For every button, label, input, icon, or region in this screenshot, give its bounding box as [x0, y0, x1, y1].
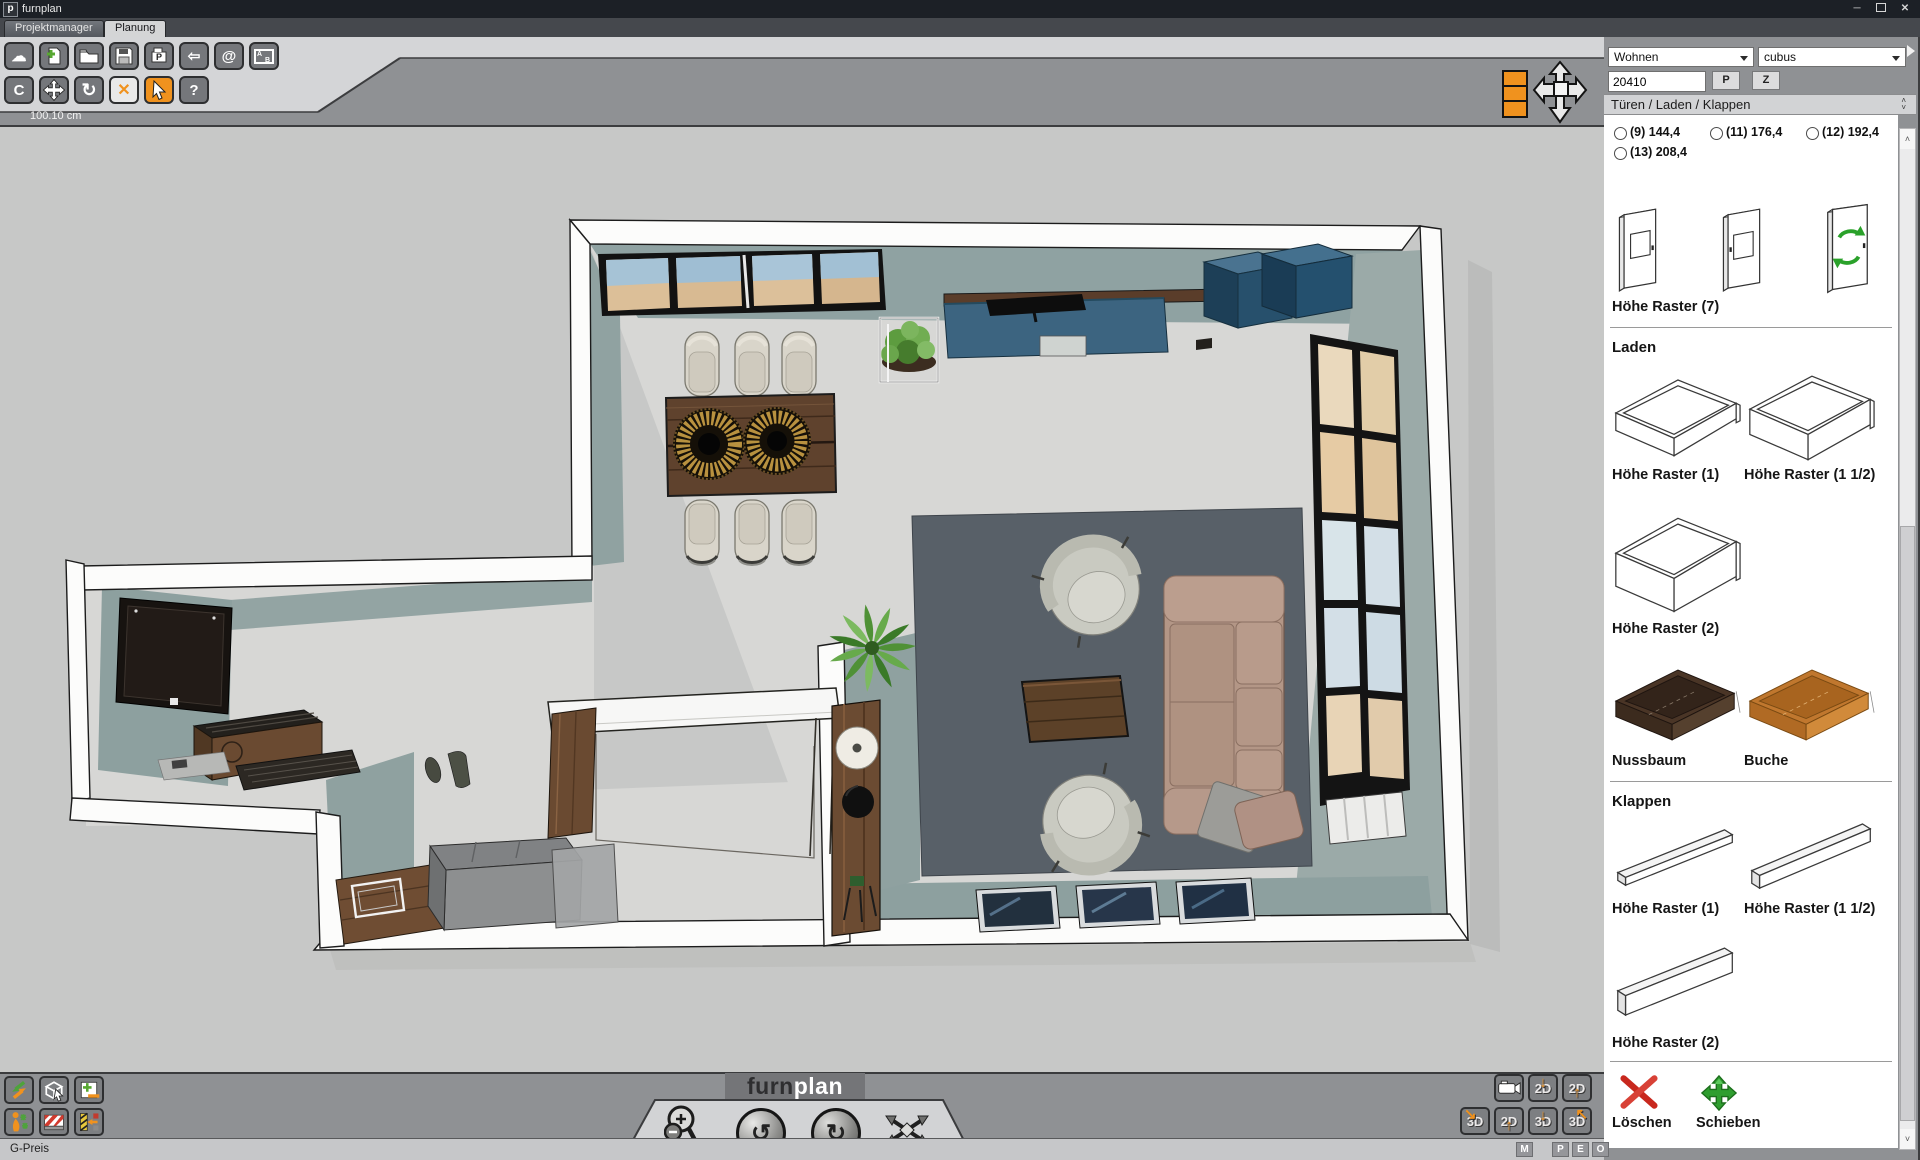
drawer-high-icon [1610, 505, 1742, 617]
rotate-tool-button[interactable]: ↻ [74, 76, 104, 104]
arrow-down-right-icon: ↘ [1464, 1109, 1477, 1121]
flap-mid-icon [1744, 815, 1880, 901]
cursor-icon [150, 80, 168, 100]
2d-down-button[interactable]: 2D↓ [1528, 1074, 1558, 1102]
box-select-icon [42, 1078, 66, 1102]
camera-view-button[interactable] [1494, 1074, 1524, 1102]
drawer-mid-icon [1744, 363, 1876, 467]
delete-x-icon [1618, 1073, 1660, 1111]
door-left-icon [1612, 203, 1664, 299]
header-scroll-icons[interactable]: ˄˅ [1901, 97, 1906, 111]
skylight-windows[interactable] [598, 249, 886, 316]
drawer-buche-icon [1744, 657, 1876, 749]
new-document-button[interactable] [39, 42, 69, 70]
door-item-turn[interactable] [1820, 199, 1874, 304]
title-bar: p furnplan ─ ✕ [0, 0, 1920, 18]
walkthrough-person-icon [7, 1110, 31, 1134]
walkthrough-button[interactable] [4, 1108, 34, 1136]
decor-bowl-2 [743, 407, 811, 475]
pan-cross-icon[interactable] [1532, 60, 1588, 124]
radio-13-208[interactable] [1614, 147, 1627, 160]
dining-table[interactable] [666, 394, 836, 496]
print-button[interactable]: P [144, 42, 174, 70]
barrier-icon [42, 1110, 66, 1134]
save-button[interactable] [109, 42, 139, 70]
delete-x-icon: ✕ [117, 80, 130, 100]
chevron-down-icon [1892, 56, 1900, 61]
status-box-o[interactable]: O [1592, 1142, 1609, 1157]
box-select-button[interactable] [39, 1076, 69, 1104]
svg-text:P: P [156, 52, 162, 62]
layer-stack-icon[interactable] [1502, 70, 1528, 118]
restore-button[interactable] [1870, 3, 1892, 15]
add-remove-button[interactable] [74, 1076, 104, 1104]
back-button[interactable]: ⇦ [179, 42, 209, 70]
2d-up-button[interactable]: 2D↑ [1562, 1074, 1592, 1102]
camera-icon [1497, 1078, 1521, 1098]
minimize-button[interactable]: ─ [1846, 3, 1868, 15]
collapse-panel-icon[interactable] [1907, 45, 1915, 57]
scroll-thumb[interactable] [1900, 526, 1915, 1121]
floorplan-canvas[interactable] [0, 127, 1604, 1072]
status-box-p[interactable]: P [1552, 1142, 1569, 1157]
z-button[interactable]: Z [1752, 71, 1780, 90]
import-export-arrows-icon [7, 1078, 31, 1102]
help-button[interactable]: ? [179, 76, 209, 104]
window-title: furnplan [22, 3, 62, 15]
model-select[interactable]: cubus [1758, 47, 1906, 67]
status-box-e[interactable]: E [1572, 1142, 1589, 1157]
laden-item-1-5[interactable] [1744, 363, 1876, 472]
status-bar: G-Preis M P E O [0, 1138, 1604, 1160]
article-number-input[interactable] [1608, 71, 1706, 92]
move-cross-icon [1700, 1075, 1738, 1111]
open-folder-button[interactable] [74, 42, 104, 70]
move-tool-button[interactable] [39, 76, 69, 104]
door-right-icon [1716, 203, 1768, 299]
klappe-item-1-5[interactable] [1744, 815, 1880, 906]
save-icon [115, 47, 133, 65]
arrow-up-icon: ↑ [1505, 1120, 1513, 1132]
arrow-up-icon: ↑ [1573, 1087, 1581, 1099]
select-cursor-button[interactable] [144, 76, 174, 104]
close-button[interactable]: ✕ [1894, 3, 1916, 15]
door-item-right[interactable] [1716, 203, 1768, 304]
arrow-down-icon: ↓ [1539, 1110, 1547, 1122]
barrier-button[interactable] [39, 1108, 69, 1136]
status-box-m[interactable]: M [1516, 1142, 1533, 1157]
measure-move-button[interactable] [74, 1108, 104, 1136]
back-arrow-icon: ⇦ [188, 47, 201, 65]
sidebar-scrollbar[interactable]: ˄ ˅ [1899, 128, 1916, 1150]
p-button[interactable]: P [1712, 71, 1740, 90]
tab-projektmanager[interactable]: Projektmanager [4, 20, 104, 37]
measure-arrow-icon [77, 1110, 101, 1134]
arrow-down-icon: ↓ [1539, 1077, 1547, 1089]
flap-high-icon [1610, 939, 1742, 1031]
delete-action[interactable] [1618, 1073, 1660, 1116]
speaker-column[interactable] [832, 700, 880, 936]
2d-up-button-2[interactable]: 2D↑ [1494, 1107, 1524, 1135]
print-icon: P [149, 46, 169, 66]
measure-label: 100.10 cm [30, 110, 81, 122]
delete-tool-button[interactable]: ✕ [109, 76, 139, 104]
catalog-sidebar: Wohnen cubus P Z Türen / Laden / Klappen… [1604, 37, 1920, 1160]
scroll-up-icon[interactable]: ˄ [1900, 129, 1915, 149]
tab-planung[interactable]: Planung [104, 20, 166, 37]
drawer-low-icon [1610, 363, 1742, 463]
svg-text:A: A [257, 51, 262, 58]
chevron-down-icon [1740, 56, 1748, 61]
open-folder-icon [79, 48, 99, 64]
drawer-nussbaum-icon [1610, 657, 1742, 749]
tab-bar: Projektmanager Planung [0, 18, 1920, 37]
coffee-table[interactable] [1022, 676, 1128, 742]
laden-item-nussbaum[interactable] [1610, 657, 1742, 754]
furnplan-app: p furnplan ─ ✕ Projektmanager Planung ☁ … [0, 0, 1920, 1160]
flap-low-icon [1610, 819, 1742, 899]
3d-down-button[interactable]: 3D↓ [1528, 1107, 1558, 1135]
klappe-item-2[interactable] [1610, 939, 1742, 1036]
category-select[interactable]: Wohnen [1608, 47, 1754, 67]
restore-icon [1876, 3, 1886, 12]
3d-corner-button[interactable]: 3D↘ [1460, 1107, 1490, 1135]
cloud-icon: ☁ [12, 47, 27, 65]
catalog-content: (9) 144,4 (11) 176,4 (12) 192,4 (13) 208… [1604, 115, 1898, 1148]
email-at-icon: @ [222, 48, 237, 65]
decor-bowl-1 [673, 408, 745, 480]
arrow-up-left-icon: ↖ [1575, 1109, 1588, 1121]
door-item-left[interactable] [1612, 203, 1664, 304]
label-ab-icon: AB [254, 47, 274, 65]
status-left-label: G-Preis [10, 1143, 49, 1155]
radio-12-192[interactable] [1806, 127, 1819, 140]
cloud-button[interactable]: ☁ [4, 42, 34, 70]
door-turn-icon [1820, 199, 1874, 299]
laden-item-buche[interactable] [1744, 657, 1876, 754]
laden-item-1[interactable] [1610, 363, 1742, 468]
label-ab-button[interactable]: AB [249, 42, 279, 70]
klappe-item-1[interactable] [1610, 819, 1742, 904]
wall-tv[interactable] [116, 598, 232, 714]
c-tool-button[interactable]: C [4, 76, 34, 104]
rotate-icon: ↻ [81, 80, 96, 101]
radio-11-176[interactable] [1710, 127, 1723, 140]
app-logo-icon: p [3, 2, 18, 17]
move-action[interactable] [1700, 1075, 1738, 1116]
move-icon [43, 79, 65, 101]
section-header: Türen / Laden / Klappen ˄˅ [1604, 94, 1916, 115]
laden-item-2[interactable] [1610, 505, 1742, 622]
svg-text:B: B [265, 57, 270, 64]
import-export-button[interactable] [4, 1076, 34, 1104]
right-window[interactable] [1310, 334, 1410, 844]
sofa[interactable] [1164, 576, 1305, 854]
radio-9-144[interactable] [1614, 127, 1627, 140]
add-remove-icon [77, 1078, 101, 1102]
email-button[interactable]: @ [214, 42, 244, 70]
scroll-down-icon[interactable]: ˅ [1900, 1129, 1915, 1149]
3d-bend-button[interactable]: 3D↖ [1562, 1107, 1592, 1135]
furnplan-logo: furnplan [725, 1073, 865, 1099]
new-document-icon [44, 46, 64, 66]
